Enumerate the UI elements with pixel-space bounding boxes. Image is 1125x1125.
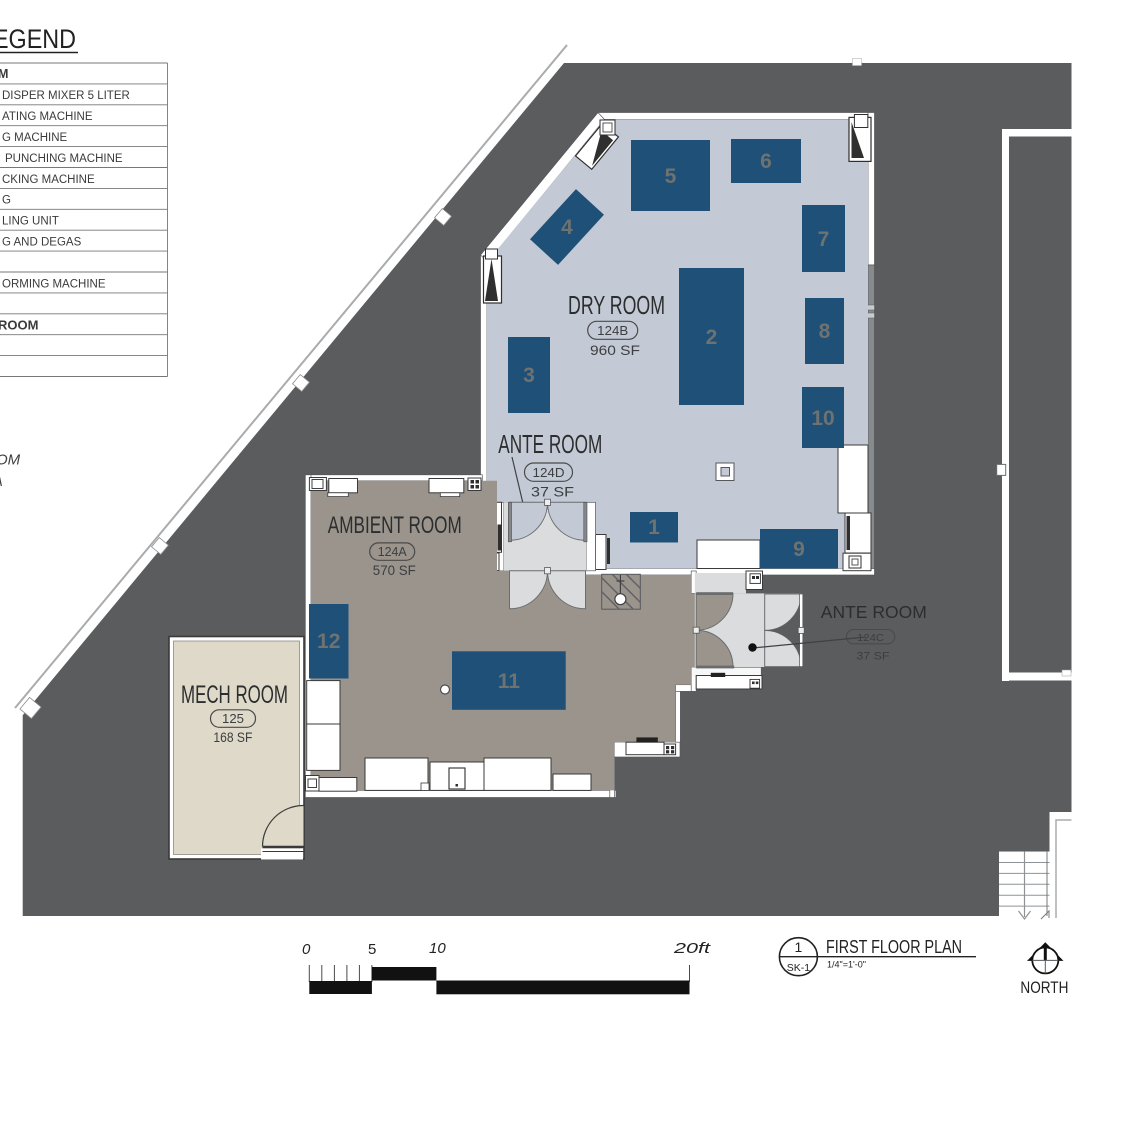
- svg-text:LING UNIT: LING UNIT: [2, 216, 59, 228]
- svg-text:DRY ROOM: DRY ROOM: [568, 290, 665, 320]
- svg-text:G AND DEGAS: G AND DEGAS: [2, 237, 82, 249]
- svg-text:2: 2: [706, 326, 718, 349]
- svg-text:MECH ROOM: MECH ROOM: [181, 681, 288, 709]
- svg-text:12: 12: [317, 630, 340, 653]
- svg-text:11: 11: [498, 670, 521, 693]
- svg-text:7: 7: [818, 228, 830, 251]
- svg-text:0: 0: [302, 941, 311, 958]
- svg-text:37 SF: 37 SF: [856, 651, 889, 663]
- svg-text:9: 9: [793, 538, 805, 561]
- svg-text:168 SF: 168 SF: [213, 729, 252, 745]
- svg-text:10: 10: [811, 407, 834, 430]
- svg-text:SK-1: SK-1: [787, 962, 811, 974]
- svg-text:LEGEND: LEGEND: [0, 24, 76, 54]
- svg-text:124D: 124D: [533, 465, 565, 480]
- svg-text:5: 5: [665, 165, 677, 188]
- svg-text:A: A: [0, 474, 3, 489]
- svg-text:DISPER MIXER 5 LITER: DISPER MIXER 5 LITER: [2, 90, 130, 102]
- svg-text:960 SF: 960 SF: [590, 342, 640, 358]
- svg-text:20ft: 20ft: [673, 940, 712, 957]
- svg-text:G MACHINE: G MACHINE: [2, 132, 68, 144]
- svg-text:ANTE ROOM: ANTE ROOM: [821, 602, 927, 622]
- svg-text:CKING MACHINE: CKING MACHINE: [2, 174, 95, 186]
- svg-text:ATING MACHINE: ATING MACHINE: [2, 111, 93, 123]
- svg-text:ROOM: ROOM: [0, 318, 38, 333]
- svg-text:3: 3: [523, 364, 535, 387]
- svg-text:124B: 124B: [597, 323, 628, 338]
- svg-text:PUNCHING MACHINE: PUNCHING MACHINE: [5, 153, 123, 165]
- svg-text:FIRST FLOOR PLAN: FIRST FLOOR PLAN: [826, 937, 962, 957]
- svg-text:8: 8: [819, 320, 831, 343]
- svg-text:1: 1: [795, 939, 803, 955]
- svg-text:37 SF: 37 SF: [531, 484, 574, 500]
- svg-text:5: 5: [368, 941, 376, 958]
- svg-text:10: 10: [429, 940, 446, 957]
- svg-text:4: 4: [561, 216, 573, 239]
- svg-text:NORTH: NORTH: [1020, 979, 1068, 997]
- svg-text:G: G: [2, 195, 11, 207]
- svg-text:1: 1: [648, 516, 660, 539]
- svg-text:1/4"=1'-0": 1/4"=1'-0": [827, 960, 866, 970]
- svg-text:M: M: [0, 67, 8, 81]
- svg-text:ANTE ROOM: ANTE ROOM: [498, 429, 602, 459]
- svg-text:125: 125: [222, 711, 244, 726]
- svg-text:124A: 124A: [378, 545, 408, 559]
- svg-text:OM: OM: [0, 452, 21, 469]
- svg-text:ORMING MACHINE: ORMING MACHINE: [2, 279, 106, 291]
- svg-text:AMBIENT ROOM: AMBIENT ROOM: [328, 512, 462, 539]
- svg-text:6: 6: [760, 150, 772, 173]
- svg-text:570 SF: 570 SF: [373, 562, 416, 578]
